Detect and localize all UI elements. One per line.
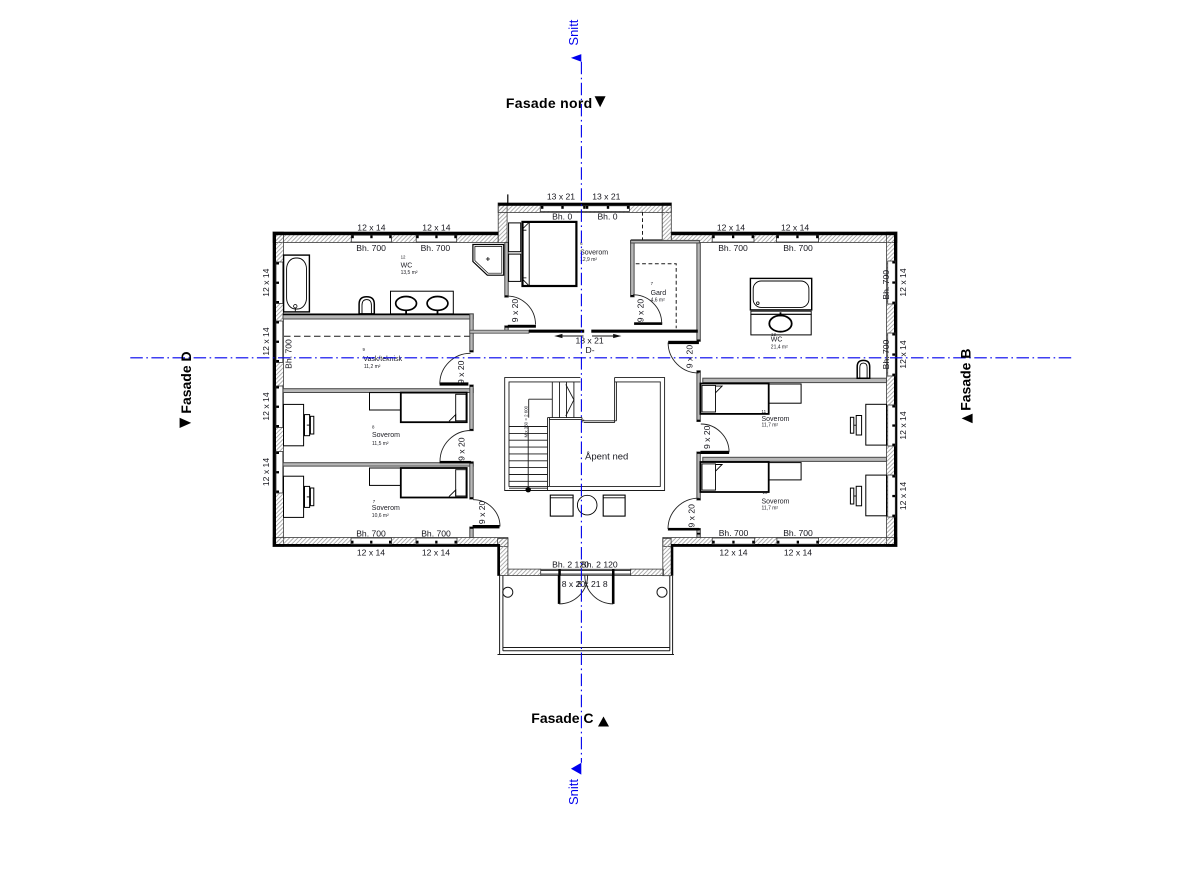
svg-text:12 x 14: 12 x 14 <box>261 458 271 486</box>
svg-text:Snitt: Snitt <box>566 19 581 45</box>
svg-text:4,6 m²: 4,6 m² <box>651 298 666 304</box>
svg-text:9 x 20: 9 x 20 <box>456 360 466 384</box>
svg-text:Bh. 700: Bh. 700 <box>284 339 294 369</box>
svg-text:Bh. 700: Bh. 700 <box>421 243 451 253</box>
svg-text:WC: WC <box>771 337 783 344</box>
svg-text:10,6 m²: 10,6 m² <box>372 513 389 519</box>
svg-text:Bh. 700: Bh. 700 <box>356 529 386 539</box>
svg-text:Bh. 700: Bh. 700 <box>421 529 451 539</box>
svg-text:M x 350 = 2 600: M x 350 = 2 600 <box>524 405 529 437</box>
svg-text:9 x 20: 9 x 20 <box>457 437 467 461</box>
svg-text:Åpent ned: Åpent ned <box>585 451 628 462</box>
svg-text:Bh. 0: Bh. 0 <box>552 212 572 222</box>
svg-text:Vask/teknisk: Vask/teknisk <box>363 356 402 363</box>
svg-text:9 x 20: 9 x 20 <box>635 299 645 323</box>
svg-text:Bh. 700: Bh. 700 <box>881 339 891 369</box>
svg-text:12 x 14: 12 x 14 <box>357 548 385 558</box>
svg-text:12 x 14: 12 x 14 <box>261 327 271 355</box>
svg-text:12 x 14: 12 x 14 <box>784 548 812 558</box>
svg-text:12 x 14: 12 x 14 <box>261 392 271 420</box>
svg-text:Bh. 700: Bh. 700 <box>783 243 813 253</box>
svg-text:12,9 m²: 12,9 m² <box>580 257 597 263</box>
svg-text:Fasade B: Fasade B <box>958 349 974 411</box>
svg-text:12 x 14: 12 x 14 <box>898 340 908 368</box>
svg-text:Gard: Gard <box>651 290 667 297</box>
svg-text:12 x 14: 12 x 14 <box>261 268 271 296</box>
svg-text:12 x 14: 12 x 14 <box>717 223 745 233</box>
svg-text:Soverom: Soverom <box>762 499 790 506</box>
svg-text:Soverom: Soverom <box>580 249 608 256</box>
svg-text:12: 12 <box>401 254 406 259</box>
svg-text:11,5 m²: 11,5 m² <box>372 441 389 447</box>
svg-text:Soverom: Soverom <box>372 505 400 512</box>
svg-text:Bh. 700: Bh. 700 <box>718 243 748 253</box>
svg-text:13 x 21: 13 x 21 <box>592 192 620 202</box>
svg-text:12 x 14: 12 x 14 <box>898 482 908 510</box>
svg-text:Bh. 700: Bh. 700 <box>356 243 386 253</box>
svg-text:Bh. 700: Bh. 700 <box>783 528 813 538</box>
svg-text:Snitt: Snitt <box>566 779 581 805</box>
svg-text:D-: D- <box>586 345 595 355</box>
svg-text:12 x 14: 12 x 14 <box>422 223 450 233</box>
svg-text:9 x 20: 9 x 20 <box>477 500 487 524</box>
svg-text:12 x 14: 12 x 14 <box>898 411 908 439</box>
svg-text:9 x 20: 9 x 20 <box>686 504 696 528</box>
svg-text:Fasade C: Fasade C <box>531 710 593 726</box>
svg-text:Fasade D: Fasade D <box>178 351 194 413</box>
svg-text:WC: WC <box>401 263 413 270</box>
svg-text:21,4 m²: 21,4 m² <box>771 345 788 351</box>
svg-text:12 x 14: 12 x 14 <box>357 223 385 233</box>
svg-text:12 x 14: 12 x 14 <box>719 548 747 558</box>
svg-text:Bh. 0: Bh. 0 <box>597 212 617 222</box>
svg-text:12 x 14: 12 x 14 <box>422 548 450 558</box>
svg-text:12 x 14: 12 x 14 <box>898 268 908 296</box>
svg-text:12 x 14: 12 x 14 <box>781 223 809 233</box>
svg-text:9 x 20: 9 x 20 <box>684 345 694 369</box>
svg-text:9 x 20: 9 x 20 <box>702 425 712 449</box>
svg-text:11: 11 <box>762 409 767 414</box>
svg-text:11,2 m²: 11,2 m² <box>364 364 381 370</box>
svg-text:13,5 m²: 13,5 m² <box>401 270 418 276</box>
svg-text:Fasade nord: Fasade nord <box>506 95 593 111</box>
svg-text:9 x 20: 9 x 20 <box>510 299 520 323</box>
svg-text:10: 10 <box>763 490 768 495</box>
svg-text:Bh. 700: Bh. 700 <box>881 270 891 300</box>
svg-text:Soverom: Soverom <box>372 432 400 439</box>
svg-text:Bh. 2 120: Bh. 2 120 <box>581 560 618 570</box>
svg-text:Bh. 700: Bh. 700 <box>719 528 749 538</box>
svg-text:11,7 m²: 11,7 m² <box>762 506 779 512</box>
svg-text:13 x 21: 13 x 21 <box>547 192 575 202</box>
svg-text:11,7 m²: 11,7 m² <box>762 422 779 428</box>
